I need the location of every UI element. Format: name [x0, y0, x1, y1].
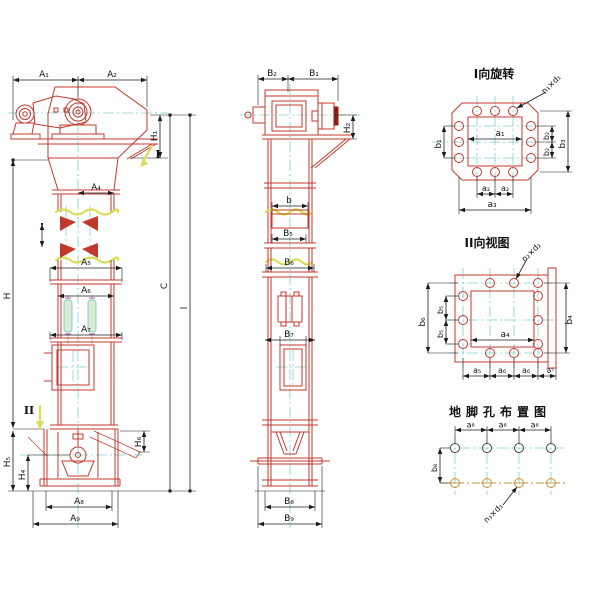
- dim-label-B2: B₂: [267, 69, 277, 79]
- dim-label-A7: A₇: [81, 325, 91, 335]
- head-casing: [48, 87, 147, 158]
- dim-label-B8: B₈: [284, 497, 294, 507]
- dim-label-H4: H₄: [18, 469, 28, 480]
- view-i-marker: I: [155, 148, 160, 161]
- view-ii-marker: II: [24, 404, 34, 417]
- head-platform: [38, 139, 158, 159]
- dim-label-a6a: a₆: [498, 366, 506, 375]
- view-ii-title: II向视图: [465, 235, 510, 250]
- dim-label-C: C: [160, 283, 170, 289]
- dim-label-H: H: [3, 293, 13, 300]
- dim-label-A5: A₅: [81, 258, 91, 268]
- middle-casing: [50, 260, 122, 425]
- dim-label-B6: B₆: [284, 258, 294, 268]
- anchor-plan-title: 地脚孔布置图: [449, 404, 551, 419]
- anchor-extension-lines: [440, 426, 551, 483]
- view-ii-arrow: [36, 421, 44, 430]
- side-view: B₂ B₁ H₂ b B₅ B₆ B₇ B₈ B₉: [240, 69, 360, 528]
- dim-label-b: b: [286, 196, 292, 206]
- view-i-title: I向旋转: [474, 66, 514, 81]
- side-head: [245, 90, 352, 168]
- dim-label-a4: a₄: [500, 330, 510, 340]
- dim-label-b1: b₁: [434, 139, 444, 149]
- dim-label-H1: H₁: [150, 130, 160, 141]
- dim-label-a6b: a₆: [522, 366, 530, 375]
- dim-label-H5: H₅: [3, 456, 13, 467]
- dim-label-H2: H₂: [343, 122, 353, 133]
- discharge-chute: [28, 431, 140, 458]
- dim-label-A9: A₉: [70, 514, 80, 524]
- dim-label-B9: B₉: [284, 514, 294, 524]
- dim-label-B5: B₅: [283, 229, 293, 239]
- dim-label-A2: A₂: [107, 70, 117, 80]
- dim-label-l: l: [180, 307, 190, 310]
- dim-label-a5: a₅: [473, 366, 481, 375]
- dim-label-b6: b₆: [418, 317, 428, 327]
- head-transition: [48, 158, 120, 212]
- view-i-arrow: [140, 158, 148, 167]
- dim-label-A4: A₄: [91, 183, 101, 193]
- dim-label-a2a: a₂: [482, 184, 490, 193]
- dim-label-B7: B₇: [284, 330, 294, 340]
- dim-label-a7: a₇: [545, 364, 556, 375]
- inspection-door: [44, 345, 94, 390]
- drive-unit: [11, 96, 104, 139]
- dim-label-a2b: a₂: [501, 184, 509, 193]
- dim-label-H6: H₆: [134, 436, 144, 447]
- dim-label-b4: b₄: [565, 315, 575, 325]
- front-view: A₁ A₂ A₄ A₅ A₆ A₇ A₈ A₉ H₁ H H₅ H₄ H₆ C …: [3, 70, 196, 528]
- view-i-hole-callout: n₁×d₁: [540, 73, 563, 96]
- dim-label-b2b: b₂: [542, 148, 551, 156]
- view-ii-flange: II向视图 b₆ b₅ b₅ b₄ a₄ a₅ a₆ a₆ a₇ n₂×d₂: [418, 235, 575, 380]
- dim-label-a3: a₃: [487, 200, 497, 210]
- view-i-flange: I向旋转 a₁ b₁ b₂ b₂ b₃ a₂ a₂ a₃ n₁×d₁: [432, 66, 572, 214]
- drawing-canvas: A₁ A₂ A₄ A₅ A₆ A₇ A₈ A₉ H₁ H H₅ H₄ H₆ C …: [0, 0, 600, 600]
- dim-label-A6: A₆: [81, 286, 91, 296]
- anchor-hole-callout: n₃×d₃: [482, 502, 505, 525]
- dim-label-b5b: b₅: [436, 330, 445, 338]
- dim-label-b5a: b₅: [436, 306, 445, 314]
- dim-label-a8a: a₈: [466, 419, 476, 429]
- dim-label-A8: A₈: [74, 497, 84, 507]
- anchor-hole-layout: 地脚孔布置图 a₈ a₈ a₈ b₈ n₃×d₃: [430, 404, 565, 525]
- dim-label-a1: a₁: [495, 129, 505, 139]
- dim-label-b2a: b₂: [542, 132, 551, 140]
- dim-ticks: [12, 114, 192, 493]
- buckets: [60, 216, 98, 258]
- break-line-upper: [56, 210, 118, 215]
- dim-label-a8c: a₈: [530, 419, 540, 429]
- view-ii-hole-callout: n₂×d₂: [520, 241, 543, 264]
- dim-label-b3: b₃: [558, 139, 568, 149]
- chain-slot-left: [64, 300, 72, 332]
- dim-label-b8: b₈: [430, 464, 439, 472]
- dim-label-B1: B₁: [309, 69, 319, 79]
- elevator-outline-drawing: A₁ A₂ A₄ A₅ A₆ A₇ A₈ A₉ H₁ H H₅ H₄ H₆ C …: [0, 0, 600, 600]
- dim-label-A1: A₁: [39, 70, 49, 80]
- dim-label-a8b: a₈: [498, 419, 508, 429]
